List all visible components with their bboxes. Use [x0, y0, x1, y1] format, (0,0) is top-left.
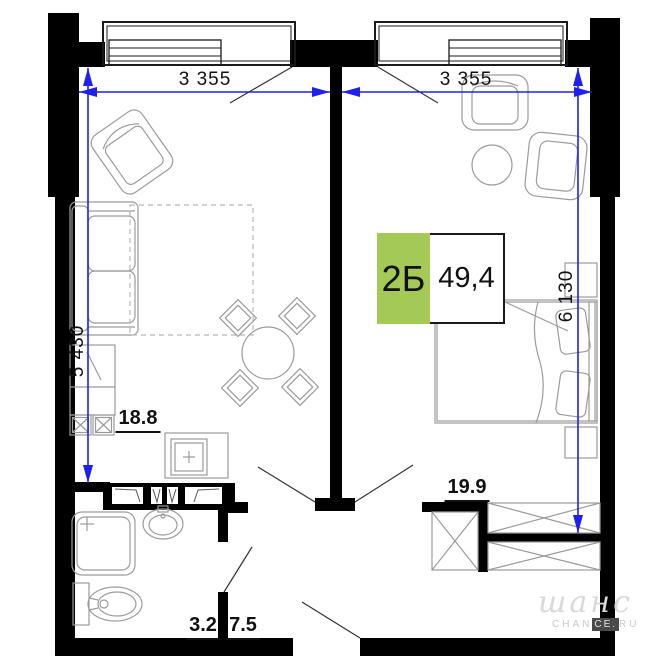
kitchen-sink — [165, 433, 228, 478]
room-area-label-bathroom: 3.2 — [186, 614, 220, 640]
wall-right-lower — [600, 197, 615, 640]
window-right — [375, 22, 567, 65]
wall-pier-top-center — [290, 40, 378, 67]
wardrobe-hallway — [488, 542, 600, 570]
dining-table-set — [220, 298, 319, 407]
room-area-label-living-kitchen: 18.8 — [116, 407, 161, 433]
wall-bottom-left — [55, 638, 293, 656]
armchair-living — [87, 106, 176, 198]
rug-dashed — [130, 205, 253, 335]
dim-label-right-vertical: 6 130 — [556, 270, 578, 323]
dim-label-left-vertical: 5 430 — [67, 325, 89, 378]
bathroom-door-swing — [224, 547, 252, 592]
wall-central-partition — [330, 65, 342, 503]
apartment-total-area: 49,4 — [430, 233, 505, 324]
bathtub — [72, 512, 135, 575]
floor-plan-drawing — [0, 0, 670, 670]
toilet — [73, 583, 142, 625]
wall-pier-top-right — [565, 40, 590, 67]
nightstand-bottom — [565, 427, 597, 458]
floor-plan: 3 355 3 355 5 430 6 130 18.8 19.9 3.2 7.… — [0, 0, 670, 670]
closet-small — [432, 512, 478, 570]
living-room-door-swing — [258, 467, 315, 502]
washbasin — [143, 506, 183, 539]
wall-closet-mid — [488, 533, 603, 542]
wall-stub-hall-doors — [315, 498, 355, 511]
room-area-label-bedroom: 19.9 — [445, 476, 490, 502]
window-left-casement-line — [230, 67, 292, 103]
stove — [70, 415, 114, 435]
wall-left-upper — [48, 13, 79, 197]
wall-bathroom-right-upper — [218, 508, 228, 542]
apartment-badge: 2Б 49,4 — [377, 233, 505, 324]
wardrobe-bedroom — [488, 503, 600, 533]
side-table — [472, 145, 512, 185]
dim-label-top-right: 3 355 — [440, 69, 493, 91]
sofa — [70, 202, 138, 335]
wall-closet-left — [478, 502, 488, 572]
wall-bottom-right — [360, 638, 615, 656]
window-right-casement-line — [378, 67, 438, 103]
wall-pier-top-left — [79, 42, 105, 67]
window-left — [103, 22, 295, 65]
room-area-label-hallway: 7.5 — [226, 614, 260, 640]
wall-stub-hallway — [228, 502, 248, 513]
entrance-door-swing — [302, 602, 360, 638]
bedroom-door-swing — [355, 465, 413, 502]
wall-right-upper — [590, 18, 620, 197]
apartment-type-label: 2Б — [377, 233, 430, 324]
dim-label-top-left: 3 355 — [179, 69, 232, 91]
